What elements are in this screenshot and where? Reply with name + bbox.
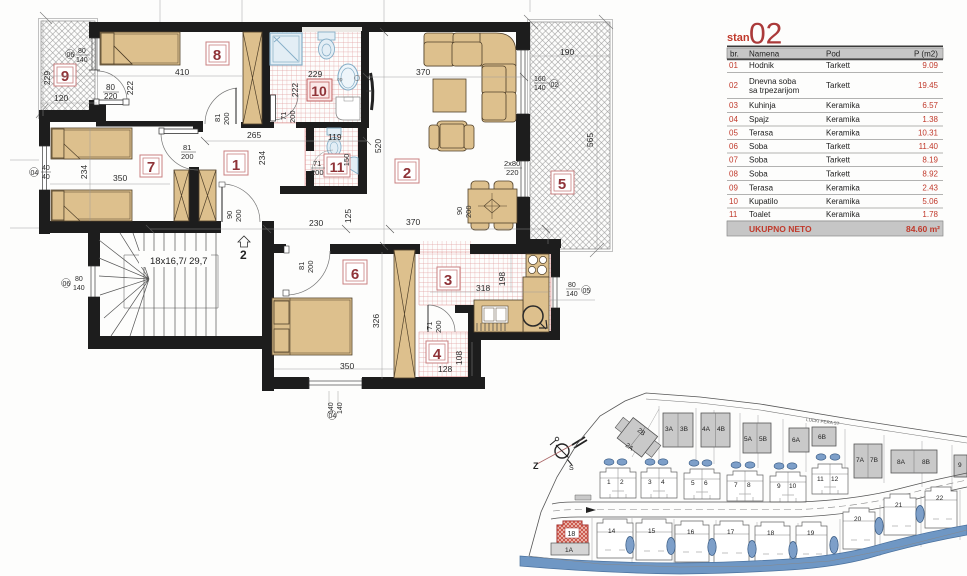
svg-text:2: 2 xyxy=(403,165,411,182)
svg-text:198: 198 xyxy=(497,272,507,286)
svg-text:229: 229 xyxy=(308,69,322,79)
svg-text:03: 03 xyxy=(729,101,738,110)
svg-text:01: 01 xyxy=(729,61,738,70)
svg-text:81: 81 xyxy=(213,114,222,122)
svg-text:Keramika: Keramika xyxy=(826,197,860,206)
svg-text:Keramika: Keramika xyxy=(826,129,860,138)
svg-text:02: 02 xyxy=(551,82,559,89)
svg-text:125: 125 xyxy=(343,209,353,223)
svg-text:1: 1 xyxy=(232,157,240,174)
svg-text:Hodnik: Hodnik xyxy=(749,61,775,70)
svg-text:7: 7 xyxy=(147,159,155,176)
svg-text:40: 40 xyxy=(42,165,50,172)
svg-text:4: 4 xyxy=(661,479,665,486)
svg-text:7: 7 xyxy=(734,482,738,489)
svg-text:108: 108 xyxy=(454,351,464,365)
svg-text:80: 80 xyxy=(568,282,576,289)
svg-text:18: 18 xyxy=(568,531,576,538)
svg-text:1: 1 xyxy=(607,479,611,486)
svg-text:565: 565 xyxy=(585,133,595,147)
svg-text:10: 10 xyxy=(311,83,327,99)
svg-text:7A: 7A xyxy=(856,457,865,464)
svg-text:Terasa: Terasa xyxy=(749,129,774,138)
svg-text:200: 200 xyxy=(464,205,473,218)
svg-text:200: 200 xyxy=(434,320,443,333)
svg-text:3B: 3B xyxy=(680,426,688,433)
svg-text:04: 04 xyxy=(31,170,39,177)
svg-text:07: 07 xyxy=(729,156,738,165)
svg-text:9: 9 xyxy=(777,483,781,490)
svg-text:200: 200 xyxy=(288,110,297,123)
svg-text:2.43: 2.43 xyxy=(922,184,938,193)
svg-text:Keramika: Keramika xyxy=(826,101,860,110)
svg-text:190: 190 xyxy=(560,47,574,57)
svg-text:20: 20 xyxy=(854,516,862,523)
svg-text:3: 3 xyxy=(648,479,652,486)
svg-text:200: 200 xyxy=(181,152,194,161)
svg-text:18x16,7/ 29,7: 18x16,7/ 29,7 xyxy=(150,256,208,267)
svg-text:06: 06 xyxy=(63,281,71,288)
svg-text:6A: 6A xyxy=(792,437,801,444)
svg-text:19.45: 19.45 xyxy=(918,81,939,90)
svg-text:6.57: 6.57 xyxy=(922,101,938,110)
svg-text:05: 05 xyxy=(583,288,591,295)
svg-text:9.09: 9.09 xyxy=(922,61,938,70)
svg-text:Tarkett: Tarkett xyxy=(826,61,851,70)
svg-text:2: 2 xyxy=(620,479,624,486)
svg-text:40: 40 xyxy=(42,174,50,181)
svg-text:160: 160 xyxy=(534,76,546,83)
svg-text:1A: 1A xyxy=(565,547,574,554)
svg-text:410: 410 xyxy=(175,67,189,77)
svg-text:10.31: 10.31 xyxy=(918,129,939,138)
svg-text:4B: 4B xyxy=(717,426,725,433)
svg-text:5.06: 5.06 xyxy=(922,197,938,206)
svg-text:229: 229 xyxy=(42,71,52,85)
svg-text:16: 16 xyxy=(687,529,695,536)
svg-text:br.: br. xyxy=(730,50,739,59)
svg-text:Tarkett: Tarkett xyxy=(826,156,851,165)
svg-text:10: 10 xyxy=(789,483,797,490)
svg-text:6B: 6B xyxy=(818,434,826,441)
svg-text:S: S xyxy=(569,465,574,472)
svg-text:200: 200 xyxy=(234,209,243,222)
svg-text:81: 81 xyxy=(183,143,191,152)
svg-text:Namena: Namena xyxy=(749,50,780,59)
svg-text:200: 200 xyxy=(306,260,315,273)
svg-text:6: 6 xyxy=(351,266,359,283)
svg-text:140: 140 xyxy=(73,285,85,292)
svg-text:1.38: 1.38 xyxy=(922,115,938,124)
svg-text:128: 128 xyxy=(438,364,452,374)
svg-text:9: 9 xyxy=(958,462,962,469)
svg-text:222: 222 xyxy=(125,81,135,95)
svg-text:222: 222 xyxy=(290,83,300,97)
svg-text:02: 02 xyxy=(729,81,738,90)
svg-text:P (m2): P (m2) xyxy=(914,50,938,59)
svg-text:06: 06 xyxy=(67,52,75,59)
svg-text:200: 200 xyxy=(311,168,324,177)
svg-text:318: 318 xyxy=(476,283,490,293)
svg-text:Tarkett: Tarkett xyxy=(826,81,851,90)
svg-text:06: 06 xyxy=(729,142,738,151)
svg-text:11.40: 11.40 xyxy=(919,142,939,151)
svg-text:140: 140 xyxy=(76,57,88,64)
svg-text:9: 9 xyxy=(61,68,69,85)
svg-text:11: 11 xyxy=(817,476,824,483)
svg-text:220: 220 xyxy=(104,92,118,101)
svg-text:4: 4 xyxy=(433,346,442,363)
svg-text:Soba: Soba xyxy=(749,142,768,151)
svg-text:230: 230 xyxy=(309,218,323,228)
svg-text:Toalet: Toalet xyxy=(749,210,771,219)
svg-text:80: 80 xyxy=(106,83,115,92)
svg-text:119: 119 xyxy=(328,132,342,142)
svg-text:8.19: 8.19 xyxy=(922,156,938,165)
svg-text:04: 04 xyxy=(729,115,738,124)
svg-text:2x80: 2x80 xyxy=(504,159,520,168)
svg-text:370: 370 xyxy=(406,217,420,227)
svg-text:150: 150 xyxy=(342,154,351,167)
svg-text:11: 11 xyxy=(729,210,738,219)
svg-text:5: 5 xyxy=(691,480,695,487)
svg-text:Terasa: Terasa xyxy=(749,184,774,193)
svg-text:234: 234 xyxy=(257,151,267,165)
svg-text:5A: 5A xyxy=(744,436,753,443)
svg-text:05: 05 xyxy=(729,129,738,138)
svg-text:14: 14 xyxy=(608,528,616,535)
svg-text:Keramika: Keramika xyxy=(826,115,860,124)
svg-text:326: 326 xyxy=(371,314,381,328)
svg-text:5B: 5B xyxy=(759,436,767,443)
svg-text:Keramika: Keramika xyxy=(826,184,860,193)
svg-text:5: 5 xyxy=(558,176,566,193)
svg-text:2: 2 xyxy=(240,248,247,262)
svg-text:8: 8 xyxy=(213,47,221,64)
svg-text:6: 6 xyxy=(704,480,708,487)
svg-text:Z: Z xyxy=(533,461,539,471)
svg-text:stan: stan xyxy=(727,32,750,44)
svg-text:200: 200 xyxy=(222,112,231,125)
svg-text:370: 370 xyxy=(416,67,430,77)
svg-text:UKUPNO NETO: UKUPNO NETO xyxy=(749,224,812,234)
svg-text:71: 71 xyxy=(279,112,288,120)
svg-text:140: 140 xyxy=(566,291,578,298)
svg-text:Tarkett: Tarkett xyxy=(826,142,851,151)
svg-text:15: 15 xyxy=(648,528,656,535)
svg-text:8: 8 xyxy=(747,482,751,489)
svg-text:09: 09 xyxy=(729,184,738,193)
svg-text:81: 81 xyxy=(297,262,306,270)
svg-text:Soba: Soba xyxy=(749,170,768,179)
svg-text:8A: 8A xyxy=(897,459,906,466)
svg-text:520: 520 xyxy=(373,139,383,153)
svg-text:350: 350 xyxy=(340,361,354,371)
svg-text:19: 19 xyxy=(807,530,815,537)
svg-text:71: 71 xyxy=(425,322,434,330)
svg-text:80: 80 xyxy=(78,48,86,55)
svg-text:1.78: 1.78 xyxy=(922,210,938,219)
svg-text:8B: 8B xyxy=(922,459,930,466)
svg-text:Tarkett: Tarkett xyxy=(826,170,851,179)
svg-text:Keramika: Keramika xyxy=(826,210,860,219)
svg-text:7B: 7B xyxy=(870,457,878,464)
svg-text:21: 21 xyxy=(895,502,903,509)
svg-text:Kupatilo: Kupatilo xyxy=(749,197,778,206)
svg-text:220: 220 xyxy=(506,168,519,177)
svg-text:04: 04 xyxy=(329,413,337,420)
svg-text:Soba: Soba xyxy=(749,156,768,165)
svg-text:op: op xyxy=(337,77,343,83)
svg-text:08: 08 xyxy=(729,170,738,179)
svg-text:10: 10 xyxy=(729,197,738,206)
svg-text:4A: 4A xyxy=(702,426,711,433)
svg-text:120: 120 xyxy=(54,93,68,103)
svg-text:Dnevna soba: Dnevna soba xyxy=(749,77,797,86)
svg-text:22: 22 xyxy=(936,495,944,502)
svg-text:8.92: 8.92 xyxy=(922,170,938,179)
svg-text:3: 3 xyxy=(444,272,452,289)
svg-text:71: 71 xyxy=(313,159,321,168)
svg-text:18: 18 xyxy=(767,530,775,537)
svg-text:80: 80 xyxy=(75,276,83,283)
svg-text:3A: 3A xyxy=(665,426,674,433)
svg-text:90: 90 xyxy=(225,211,234,219)
svg-text:sa trpezarijom: sa trpezarijom xyxy=(749,86,800,95)
svg-text:Kuhinja: Kuhinja xyxy=(749,101,776,110)
svg-text:140: 140 xyxy=(534,85,546,92)
svg-text:17: 17 xyxy=(727,529,735,536)
svg-text:12: 12 xyxy=(831,476,839,483)
svg-text:265: 265 xyxy=(247,130,261,140)
svg-text:90: 90 xyxy=(455,207,464,215)
svg-text:350: 350 xyxy=(113,173,127,183)
svg-text:Spajz: Spajz xyxy=(749,115,769,124)
svg-text:84.60 m²: 84.60 m² xyxy=(906,224,940,234)
svg-text:234: 234 xyxy=(79,165,89,179)
svg-text:Pod: Pod xyxy=(826,50,840,59)
